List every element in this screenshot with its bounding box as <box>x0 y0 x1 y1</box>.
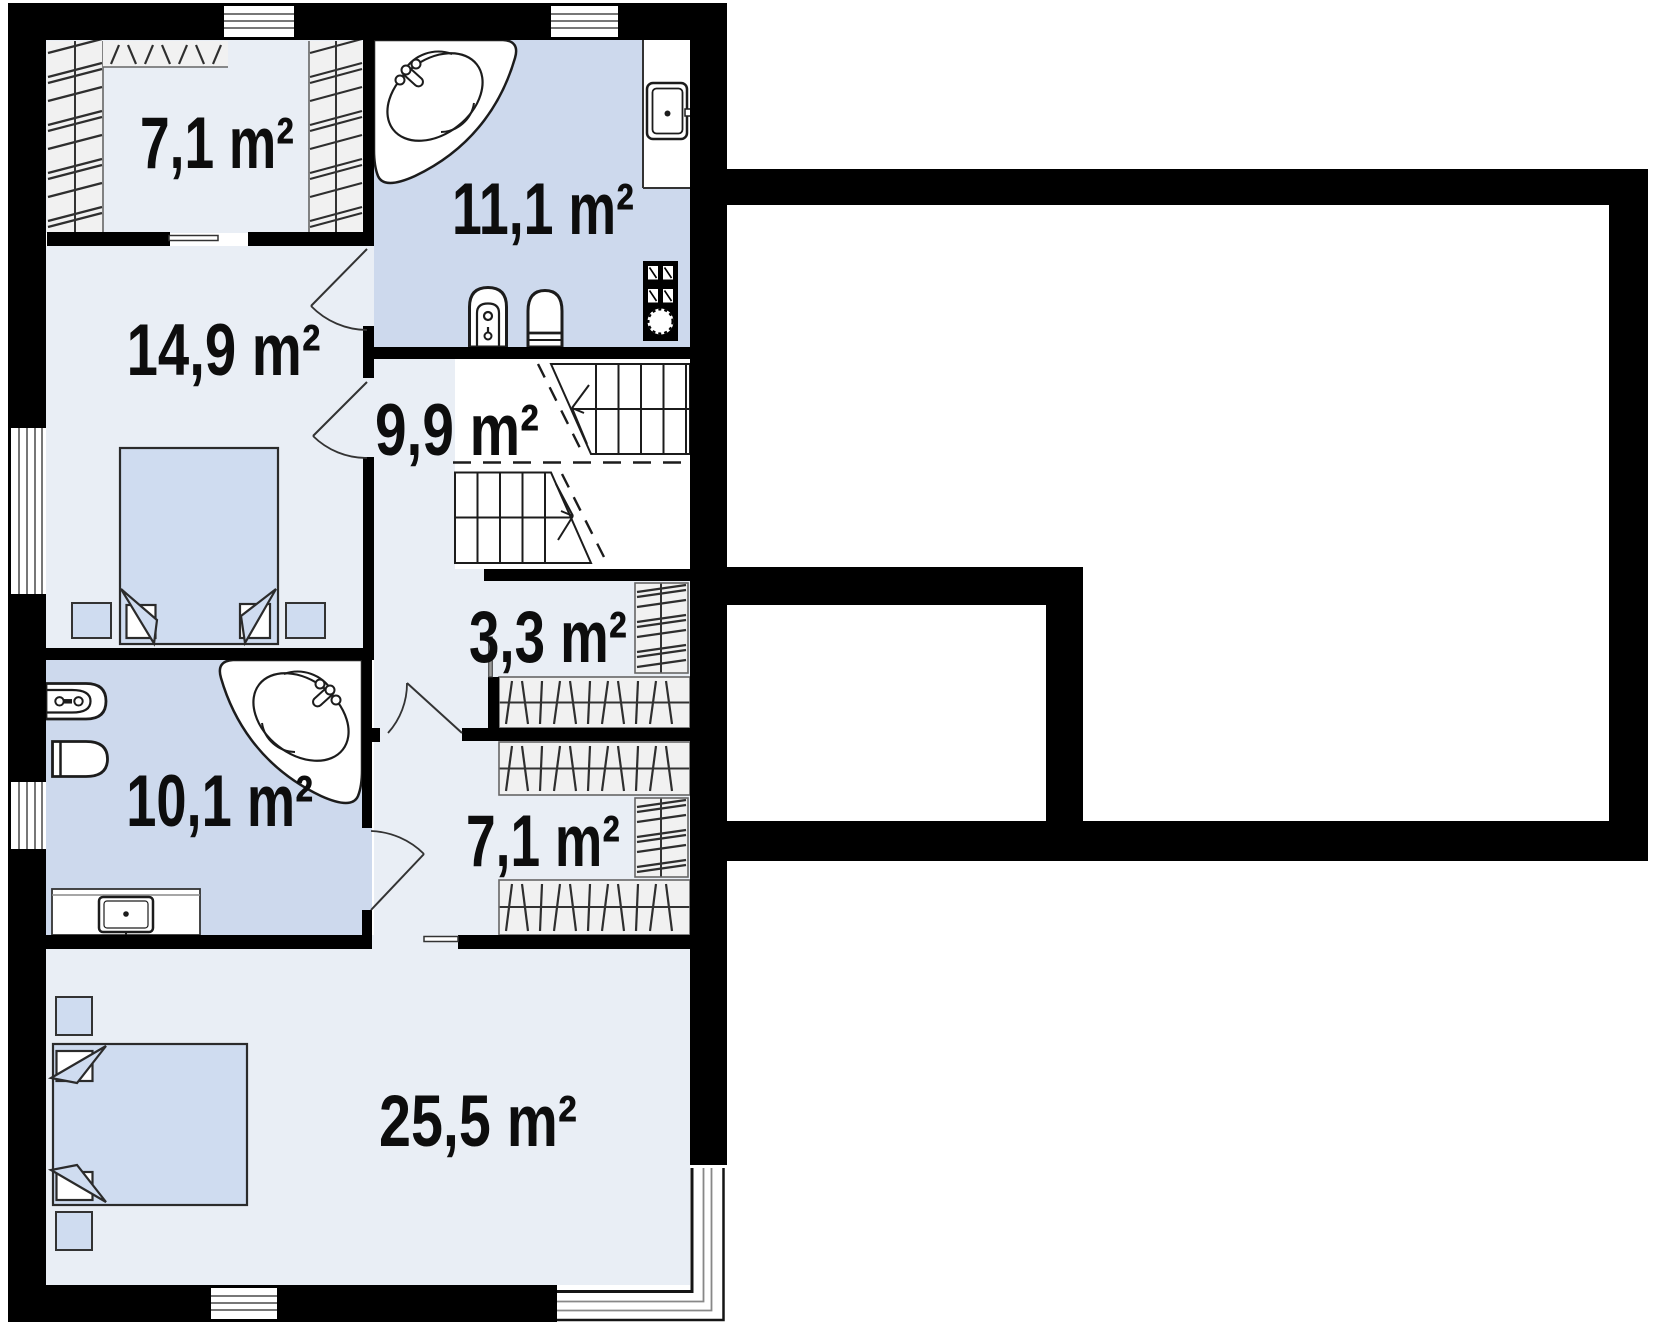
svg-text:9,9 m²: 9,9 m² <box>375 390 539 471</box>
svg-text:11,1 m²: 11,1 m² <box>452 169 634 250</box>
svg-text:10,1 m²: 10,1 m² <box>126 761 313 842</box>
svg-text:25,5 m²: 25,5 m² <box>379 1081 577 1162</box>
svg-text:3,3 m²: 3,3 m² <box>469 597 627 678</box>
svg-text:7,1 m²: 7,1 m² <box>466 801 620 882</box>
svg-text:14,9 m²: 14,9 m² <box>127 310 321 391</box>
svg-text:7,1 m²: 7,1 m² <box>140 103 294 184</box>
